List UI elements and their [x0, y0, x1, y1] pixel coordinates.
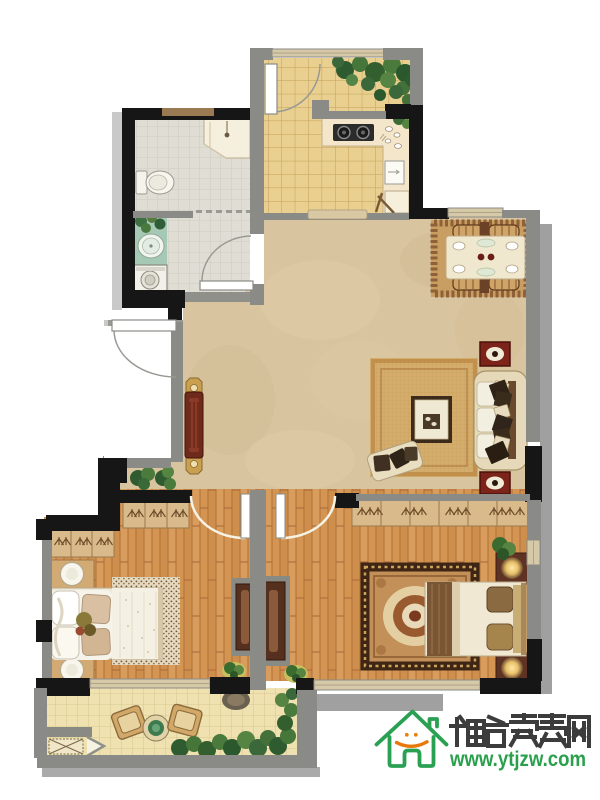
svg-text:www.ytjzw.com: www.ytjzw.com — [449, 748, 586, 771]
